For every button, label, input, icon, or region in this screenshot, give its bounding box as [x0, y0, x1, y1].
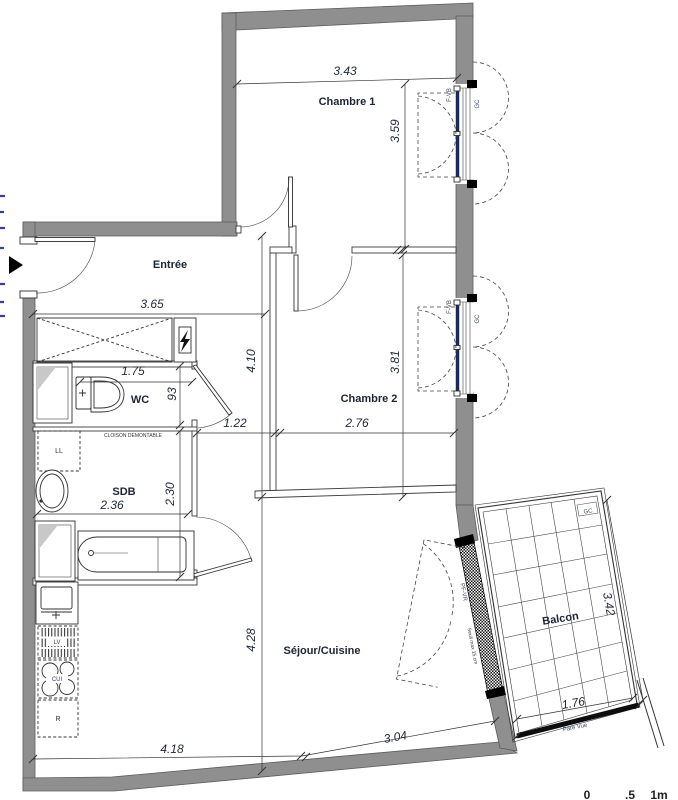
- chambre2-door: [294, 255, 352, 311]
- cloison-demontable-label: CLOISON DEMONTABLE: [104, 433, 163, 439]
- kitchen-sink: [36, 582, 78, 624]
- room-label-wc: WC: [131, 394, 149, 406]
- sejour-door-type-label: PF-VR: [458, 583, 467, 602]
- washbasin: [36, 470, 68, 512]
- sdb-door: [193, 517, 252, 577]
- bathtub: [78, 531, 194, 580]
- dim-entree-width: 3.65: [140, 297, 164, 311]
- scale-one: 1m: [650, 788, 667, 800]
- dim-chambre1-width: 3.43: [333, 64, 357, 78]
- room-label-sdb: SDB: [112, 486, 135, 498]
- door-leaf-open: [396, 540, 465, 687]
- window-swing-outside: [473, 62, 508, 204]
- window-swing-inside: [418, 96, 456, 174]
- closet-cross: [37, 318, 172, 362]
- dim-hall-width: 1.22: [223, 416, 247, 430]
- window1-type-label: F-VB: [447, 88, 453, 102]
- dim-hall-height: 4.10: [244, 349, 258, 373]
- floor-plan-drawing: Chambre 1 Entrée WC Chambre 2 SDB Séjour…: [0, 0, 678, 800]
- floor-plan: Chambre 1 Entrée WC Chambre 2 SDB Séjour…: [0, 0, 678, 800]
- dim-chambre2-width: 2.76: [344, 416, 369, 430]
- scale-half: .5: [625, 788, 635, 800]
- window2-type-label: F-VB: [447, 300, 453, 314]
- room-label-entree: Entrée: [153, 259, 187, 271]
- dim-sdb-height: 2.30: [163, 482, 177, 507]
- dim-wc-width: 1.75: [121, 364, 145, 378]
- cloison-demontable-wall: [33, 427, 197, 431]
- scale-zero: 0: [584, 788, 591, 800]
- door-swing-arc: [241, 178, 289, 227]
- dim-wc-height: 93: [165, 387, 179, 401]
- clipped-left-text: [0, 196, 5, 316]
- room-label-sejour: Séjour/Cuisine: [283, 645, 360, 657]
- door-leaf: [289, 177, 293, 227]
- window-leaf-open: [418, 93, 455, 177]
- cooktop-label: CUI: [52, 677, 63, 683]
- dim-sejour-height: 4.28: [244, 628, 258, 652]
- chambre1-door: [241, 177, 293, 227]
- washing-machine-label: LL: [55, 448, 63, 455]
- window2-gc-label: GC: [475, 314, 481, 324]
- door-swing-inside: [397, 544, 464, 685]
- door-leaf: [193, 365, 232, 415]
- dishwasher-label: LV: [54, 640, 61, 646]
- entrance-arrow-icon: [9, 256, 23, 274]
- door-swing-arc: [298, 256, 352, 311]
- duct-shower-wc: [33, 363, 72, 423]
- window1-gc-label: GC: [475, 99, 481, 109]
- entry-closet: [37, 318, 172, 362]
- door-leaf: [294, 255, 298, 311]
- dim-chambre2-height: 3.81: [388, 350, 402, 373]
- dim-sejour-width1: 4.18: [160, 742, 184, 756]
- door-swing-arc: [196, 517, 251, 559]
- shower-sdb: [35, 521, 75, 581]
- dim-sdb-width: 2.36: [99, 498, 124, 512]
- door-leaf: [35, 238, 95, 242]
- room-label-chambre2: Chambre 2: [341, 393, 398, 405]
- door-leaf: [193, 558, 252, 577]
- window-swing-outside: [473, 276, 508, 418]
- dim-chambre1-height: 3.59: [388, 119, 402, 143]
- electrical-panel: [174, 318, 196, 362]
- entrance-door: [20, 237, 95, 298]
- door-swing-arc: [36, 241, 95, 293]
- window-swing-inside: [418, 310, 456, 388]
- room-label-chambre1: Chambre 1: [319, 96, 376, 108]
- refrigerator-label: R: [55, 716, 60, 723]
- window-leaf-open: [418, 307, 455, 391]
- dim-sejour-width2: 3.04: [383, 728, 409, 746]
